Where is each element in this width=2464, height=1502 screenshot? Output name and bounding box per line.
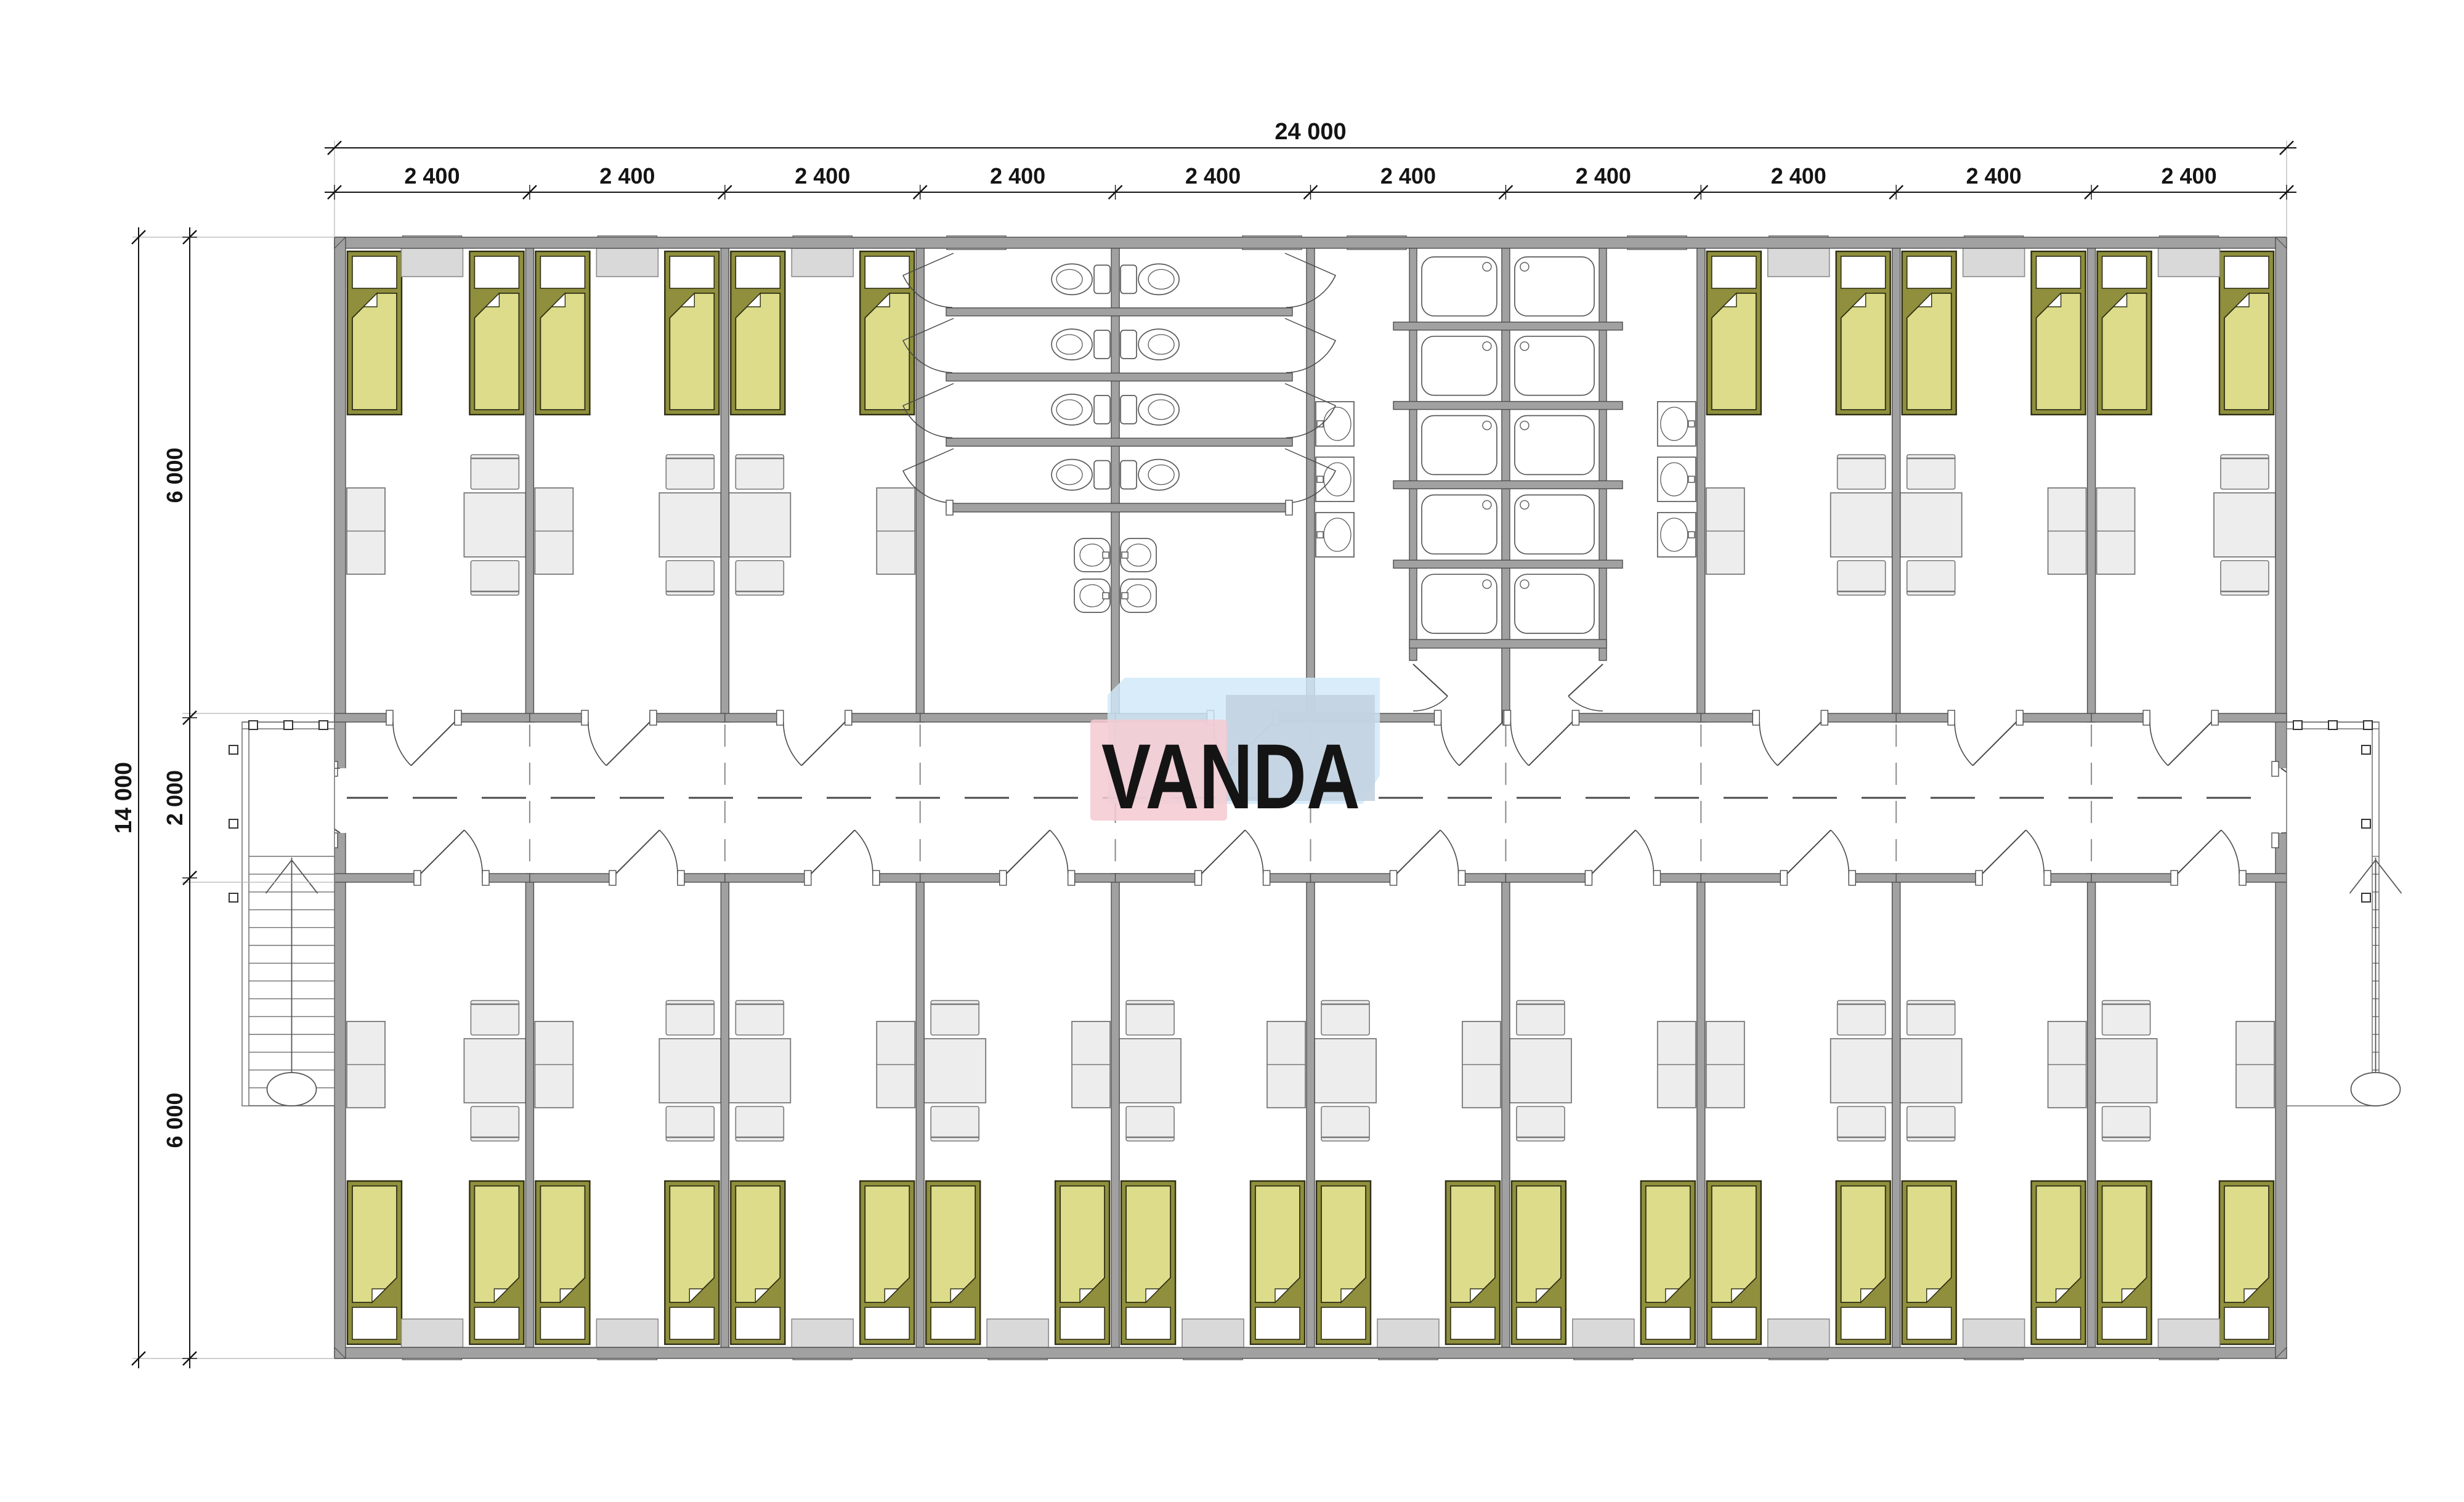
dining-table [2214,493,2276,557]
door-leaf [421,830,464,874]
dining-table [659,493,721,557]
railing-post [284,721,293,729]
bed-blanket [670,293,714,410]
corridor-wall-bottom [1896,874,1982,882]
dim-label-bay: 2 400 [1576,163,1631,189]
floor-plan-canvas: VANDA24 0002 4002 4002 4002 4002 4002 40… [0,0,2464,1502]
bed-pillow [1255,1307,1300,1339]
bed-blanket [540,1186,585,1302]
room-wall-bottom-band [525,874,533,1347]
railing-post [2362,819,2370,828]
cabinet [596,1319,658,1347]
room-wall-bottom-band [1892,874,1900,1347]
door-jamb [1753,710,1759,725]
door-swing-arc [1635,830,1653,874]
chair [471,561,519,595]
door-swing-arc [1510,722,1528,766]
door-swing-arc [2026,830,2044,874]
chair [1838,1106,1886,1141]
wc-sink [1121,579,1156,612]
bed-blanket [1451,1186,1495,1302]
wc-stall-divider [946,373,1292,381]
door-swing-arc [464,830,482,874]
cabinet [401,1319,463,1347]
shower-stall [1422,416,1497,475]
room-wall-top-band [721,248,729,722]
dim-label-bay: 2 400 [795,163,850,189]
bed-blanket [670,1186,714,1302]
faucet [1122,552,1128,558]
chair [666,1106,714,1141]
room-wall-top-band [525,248,533,722]
faucet [1317,476,1323,482]
corridor-wall-bottom [725,874,811,882]
bed [347,1181,402,1344]
door-swing-arc [2221,830,2239,874]
floor-plan: VANDA24 0002 4002 4002 4002 4002 4002 40… [0,0,2464,1502]
corridor-wall-bottom [2091,874,2178,882]
corridor-wall-top [530,713,588,722]
bed-pillow [2036,1307,2081,1339]
cabinet [1963,248,2025,277]
dim-label-bay: 2 400 [990,163,1045,189]
door-swing-arc [784,722,801,766]
corridor-wall-top [650,713,725,722]
door-jamb [482,871,489,885]
chair [736,561,784,595]
corridor-wall-top [455,713,530,722]
corridor-wall-top [1896,713,1955,722]
door-jamb [1459,871,1465,885]
corridor-wall-top [2091,713,2150,722]
bed-blanket [865,1186,909,1302]
chair [2102,1001,2150,1035]
bed-pillow [1841,1307,1886,1339]
bed-blanket [1060,1186,1104,1302]
door-swing-arc [1441,722,1459,766]
toilet-bowl [1138,460,1179,490]
dining-table [729,1039,790,1103]
chair [1321,1106,1369,1141]
shower-divider [1393,322,1623,330]
toilet-bowl [1052,394,1092,425]
dining-table [1831,1039,1892,1103]
bed-blanket [865,293,909,410]
wc-stall-divider [946,308,1292,316]
door-jamb [1976,871,1982,885]
bed-pillow [865,1307,909,1339]
bed-blanket [1712,293,1756,410]
dim-label-bay: 2 400 [1771,163,1826,189]
corridor-wall-bottom [530,874,616,882]
bed-pillow [540,256,585,288]
porch-outline [2287,722,2379,1106]
bed-pillow [2224,256,2269,288]
bed [1316,1181,1371,1344]
corridor-wall-top [1572,713,1701,722]
bed-blanket [2036,1186,2081,1302]
bed [731,251,785,415]
corridor-wall-bottom [920,874,1007,882]
chair [1517,1106,1565,1141]
railing-post [249,721,257,729]
toilet [1052,264,1110,294]
bed-blanket [474,293,519,410]
door-leaf [1973,722,2017,766]
door-leaf [1007,830,1050,874]
door-leaf [1459,722,1503,766]
railing-post [2328,721,2337,729]
faucet [1103,552,1109,558]
room-wall-top-band [1111,248,1119,722]
corridor-wall-bottom [1311,874,1397,882]
toilet [1121,460,1179,490]
bed-pillow [2102,256,2147,288]
wardrobe [877,1021,915,1108]
door-swing-arc [855,830,873,874]
corridor-wall-bottom [1116,874,1202,882]
shower-stall [1515,336,1594,396]
dim-label-bay: 2 400 [599,163,655,189]
shower-stall [1422,336,1497,396]
toilet-bowl [1138,329,1179,360]
shower-divider [1393,481,1623,489]
faucet [1688,532,1695,538]
door-jamb [2272,833,2279,848]
toilet [1121,394,1179,425]
bed-blanket [1255,1186,1300,1302]
bed-pillow [670,256,714,288]
cabinet [1768,248,1830,277]
chair [1907,561,1955,595]
shower-side-wall [1599,248,1607,660]
shower-stall [1515,416,1594,475]
bed-blanket [1712,1186,1756,1302]
bed-pillow [1517,1307,1561,1339]
dining-table [1510,1039,1571,1103]
porch-outline [242,722,334,1106]
door-jamb [1286,500,1292,515]
chair [666,455,714,489]
bed [2097,251,2152,415]
chair [471,455,519,489]
chair [931,1106,979,1141]
shower-side-wall [1409,248,1417,660]
wardrobe [535,488,573,574]
door-swing-arc [1245,830,1263,874]
bed-pillow [1060,1307,1104,1339]
porch-door-gap [2274,768,2288,833]
bed-blanket [736,1186,780,1302]
chair [1321,1001,1369,1035]
chair [1907,455,1955,489]
wardrobe [347,1021,385,1108]
chair [1838,455,1886,489]
bed-pillow [2224,1307,2269,1339]
cabinet [2158,248,2220,277]
chair [1907,1106,1955,1141]
wardrobe [1706,488,1745,574]
bed [1121,1181,1175,1344]
bed-pillow [670,1307,714,1339]
room-wall-top-band [1307,248,1315,722]
door-leaf [801,722,845,766]
dim-label-bay: 2 400 [404,163,460,189]
bed [1836,1181,1891,1344]
railing-post [2362,893,2370,902]
dim-label-bay: 2 400 [1380,163,1436,189]
bed [535,1181,590,1344]
toilet [1052,460,1110,490]
dining-table [464,493,525,557]
bed [1707,1181,1761,1344]
door-swing-arc [1440,830,1458,874]
door-leaf [1397,830,1441,874]
door-leaf [1592,830,1635,874]
cabinet [596,248,658,277]
wardrobe [877,488,915,574]
faucet [1317,532,1323,538]
toilet-bowl [1052,329,1092,360]
room-wall-top-band [1892,248,1900,722]
dining-table [729,493,790,557]
faucet [1122,593,1128,599]
wc-sink [1074,579,1110,612]
door-jamb [804,871,811,885]
bed [926,1181,980,1344]
door-jamb [1572,710,1579,725]
bed [535,251,590,415]
room-wall-bottom-band [2088,874,2096,1347]
door-leaf [1529,722,1573,766]
room-wall-top-band [2088,248,2096,722]
door-jamb [1504,710,1510,725]
wardrobe [1658,1021,1696,1108]
bed-pillow [540,1307,585,1339]
wash-basin [1658,402,1696,446]
chair [666,561,714,595]
wardrobe [1072,1021,1110,1108]
vestibule-door-leaf [1413,664,1448,696]
bed-pillow [1126,1307,1170,1339]
shower-block-bottom [1409,639,1607,648]
door-jamb [2016,710,2023,725]
bed-blanket [1907,293,1951,410]
bed-pillow [736,1307,780,1339]
dining-table [1119,1039,1181,1103]
door-swing-arc [588,722,606,766]
toilet-bowl [1052,460,1092,490]
dim-label-left-segment: 2 000 [162,770,187,826]
corridor-wall-top [2016,713,2091,722]
toilet-bowl [1138,264,1179,294]
door-jamb [1821,710,1828,725]
cabinet [1963,1319,2025,1347]
door-leaf [1202,830,1246,874]
vanda-watermark: VANDA [1090,678,1380,828]
shower-divider [1393,402,1623,410]
railing-post [319,721,328,729]
wc-sink [1121,538,1156,572]
bed [860,1181,914,1344]
bed-pillow [865,256,909,288]
door-swing-arc [1955,722,1972,766]
faucet [1688,476,1695,482]
railing-post [2364,721,2372,729]
bed [1902,251,1956,415]
bed [2097,1181,2152,1344]
dim-label-top-total: 24 000 [1275,119,1346,145]
bed-blanket [2036,293,2081,410]
wash-basin [1658,513,1696,557]
dining-table [659,1039,721,1103]
wardrobe [535,1021,573,1108]
bed [1707,251,1761,415]
door-jamb [2044,871,2051,885]
watermark-text: VANDA [1101,725,1360,828]
door-swing-arc [660,830,678,874]
bed-pillow [1712,1307,1756,1339]
bed-blanket [1321,1186,1366,1302]
chair [2221,561,2269,595]
bed-blanket [1126,1186,1170,1302]
bed [731,1181,785,1344]
dining-table [1831,493,1892,557]
chair [931,1001,979,1035]
chair [471,1001,519,1035]
chair [1126,1001,1174,1035]
door-jamb [1000,871,1007,885]
door-jamb [1435,710,1441,725]
bed-blanket [931,1186,975,1302]
door-jamb [2171,871,2178,885]
faucet [1688,421,1695,427]
door-jamb [2272,761,2279,776]
bed [347,251,402,415]
door-jamb [777,710,784,725]
bed-blanket [1907,1186,1951,1302]
corridor-wall-top [2211,713,2287,722]
bed-pillow [1712,256,1756,288]
door-jamb [946,500,953,515]
bed-blanket [736,293,780,410]
door-jamb [1653,871,1660,885]
chair [2221,455,2269,489]
stair-start-mark [267,1073,317,1106]
room-wall-bottom-band [1307,874,1315,1347]
door-jamb [2239,871,2246,885]
railing-post [2362,745,2370,754]
door-jamb [845,710,852,725]
chair [736,455,784,489]
door-jamb [455,710,461,725]
door-jamb [386,710,393,725]
door-jamb [678,871,684,885]
door-swing-arc [393,722,411,766]
bed [469,251,524,415]
door-leaf [1778,722,1822,766]
bed [2032,251,2086,415]
door-leaf [2168,722,2211,766]
chair [1517,1001,1565,1035]
vestibule-door-arc [1413,696,1448,711]
bed-blanket [1517,1186,1561,1302]
bed-blanket [352,293,397,410]
cabinet [1182,1319,1244,1347]
door-jamb [1948,710,1955,725]
corridor-wall-top [334,713,393,722]
door-jamb [2143,710,2150,725]
bed [665,1181,719,1344]
outer-wall-bottom [334,1347,2287,1358]
bed-pillow [736,256,780,288]
wardrobe [2236,1021,2274,1108]
bed [2032,1181,2086,1344]
bed-pillow [1841,256,1886,288]
wc-sink [1074,538,1110,572]
door-jamb [1780,871,1787,885]
dining-table [1315,1039,1376,1103]
door-swing-arc [1050,830,1068,874]
vestibule-door-arc [1568,696,1603,711]
dim-label-bay: 2 400 [1966,163,2022,189]
door-jamb [873,871,880,885]
bed [665,251,719,415]
chair [1907,1001,1955,1035]
bed-pillow [2102,1307,2147,1339]
door-jamb [2211,710,2218,725]
door-jamb [1585,871,1592,885]
corridor-wall-top [725,713,784,722]
door-jamb [1263,871,1270,885]
door-jamb [1390,871,1397,885]
cabinet [987,1319,1048,1347]
door-jamb [1195,871,1202,885]
bed-blanket [1841,1186,1886,1302]
wardrobe [1706,1021,1745,1108]
chair [471,1106,519,1141]
toilet-bowl [1052,264,1092,294]
chair [736,1106,784,1141]
room-wall-top-band [1697,248,1705,722]
dining-table [1900,1039,1962,1103]
wc-stall-divider [946,438,1292,446]
door-swing-arc [1831,830,1849,874]
bed-pillow [931,1307,975,1339]
chair [1126,1106,1174,1141]
door-leaf [811,830,855,874]
bed-pillow [1907,256,1951,288]
stairs-left [229,721,334,1106]
room-wall-bottom-band [1697,874,1705,1347]
bed [1055,1181,1109,1344]
door-jamb [609,871,616,885]
toilet [1121,329,1179,360]
dining-table [924,1039,986,1103]
outer-wall-top [334,237,2287,248]
bed-pillow [1907,1307,1951,1339]
wardrobe [2048,1021,2086,1108]
bed-blanket [2224,1186,2269,1302]
bed [469,1181,524,1344]
chair [666,1001,714,1035]
corridor-wall-bottom [1701,874,1787,882]
bed [1512,1181,1566,1344]
railing-post [2293,721,2302,729]
wash-basin [1316,457,1354,501]
door-jamb [1849,871,1855,885]
door-leaf [616,830,660,874]
